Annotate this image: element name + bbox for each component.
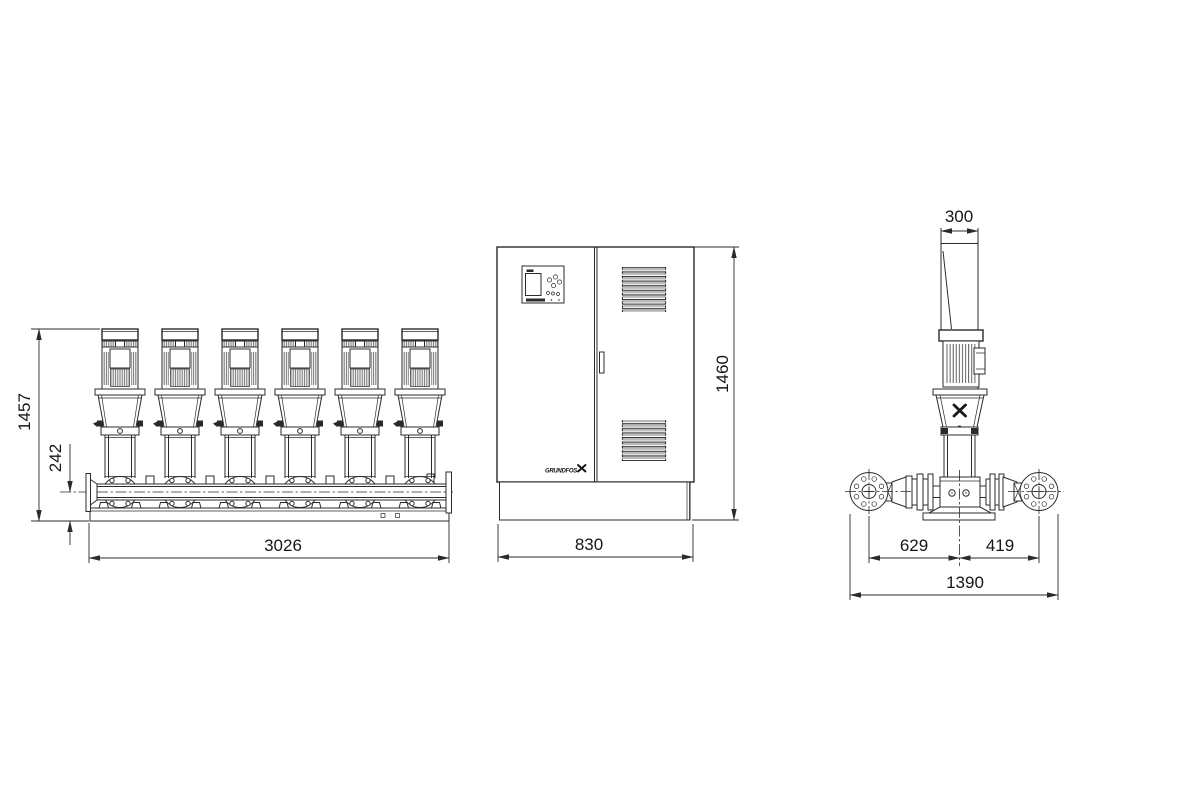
dim-label-cabinet-height: 1460 xyxy=(713,355,732,393)
dim-label-right-offset: 419 xyxy=(986,536,1014,555)
pump-unit-2 xyxy=(153,329,205,508)
suction-pipe-assembly xyxy=(845,469,940,514)
dim-label-left-offset: 629 xyxy=(900,536,928,555)
pump-side xyxy=(923,330,995,520)
brand-logo-text: GRUNDFOS xyxy=(545,469,577,475)
cabinet-plinth xyxy=(500,482,691,520)
side-view: 300 629 419 1390 xyxy=(845,207,1064,600)
dim-side-overall: 1390 xyxy=(850,514,1058,600)
dim-label-side-overall: 1390 xyxy=(946,573,984,592)
control-unit-display xyxy=(526,274,542,296)
dim-label-side-depth: 300 xyxy=(945,207,973,226)
dim-cabinet-width: 830 xyxy=(498,524,693,562)
dim-side-depth: 300 xyxy=(941,207,978,231)
pump-unit-4 xyxy=(273,329,325,508)
base-plate-side xyxy=(923,513,995,520)
front-view: 1457 242 3026 xyxy=(15,329,453,563)
dim-front-base-height: 242 xyxy=(46,444,70,545)
pump-unit-3 xyxy=(213,329,265,508)
motor-cap-side xyxy=(939,330,983,341)
manifold-end-flange-left xyxy=(86,474,91,512)
pump-unit-5 xyxy=(333,329,385,508)
dim-label-front-base-height: 242 xyxy=(46,444,65,472)
base-frame xyxy=(90,508,449,521)
dim-label-front-height: 1457 xyxy=(15,393,34,431)
vent-grille-top xyxy=(622,267,666,312)
motor-terminal-box xyxy=(974,348,985,374)
pump-base-block xyxy=(940,477,980,507)
dim-cabinet-height: 1460 xyxy=(692,247,739,520)
dim-label-front-width: 3026 xyxy=(264,536,302,555)
manifold-end-flange-right xyxy=(446,472,452,513)
control-unit-panel xyxy=(522,266,564,303)
cabinet-door-handle xyxy=(600,352,605,373)
technical-drawing-page: 1457 242 3026 xyxy=(0,0,1200,800)
dim-label-cabinet-width: 830 xyxy=(575,535,603,554)
pump-unit-6 xyxy=(393,329,445,508)
cabinet-view: GRUNDFOS 1460 830 xyxy=(497,247,739,562)
discharge-pipe-assembly xyxy=(980,469,1064,514)
pump-unit-1 xyxy=(93,329,145,508)
vent-grille-bottom xyxy=(622,420,666,461)
drawing-canvas: 1457 242 3026 xyxy=(0,0,1200,800)
dim-side-offsets: 629 419 xyxy=(869,516,1039,563)
motor-stool-flange-side xyxy=(933,389,987,395)
